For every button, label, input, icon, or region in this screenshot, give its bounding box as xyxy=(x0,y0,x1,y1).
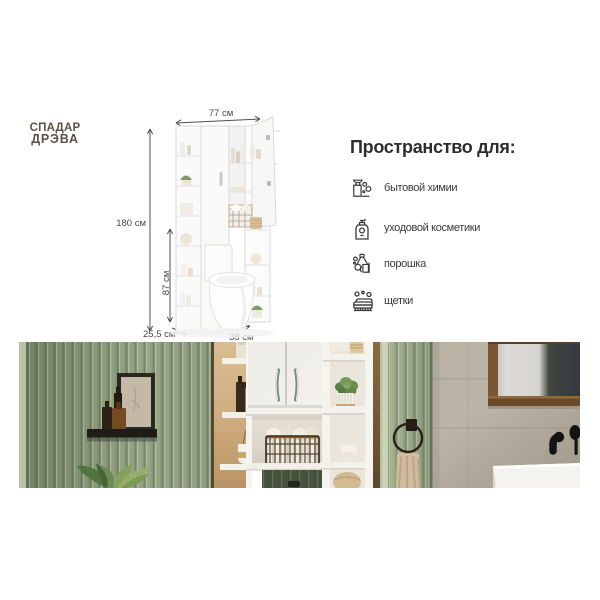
svg-text:25,5 см: 25,5 см xyxy=(143,329,175,340)
svg-text:77 см: 77 см xyxy=(209,108,234,119)
svg-text:87 см: 87 см xyxy=(161,271,172,296)
svg-text:180 см: 180 см xyxy=(116,218,146,229)
